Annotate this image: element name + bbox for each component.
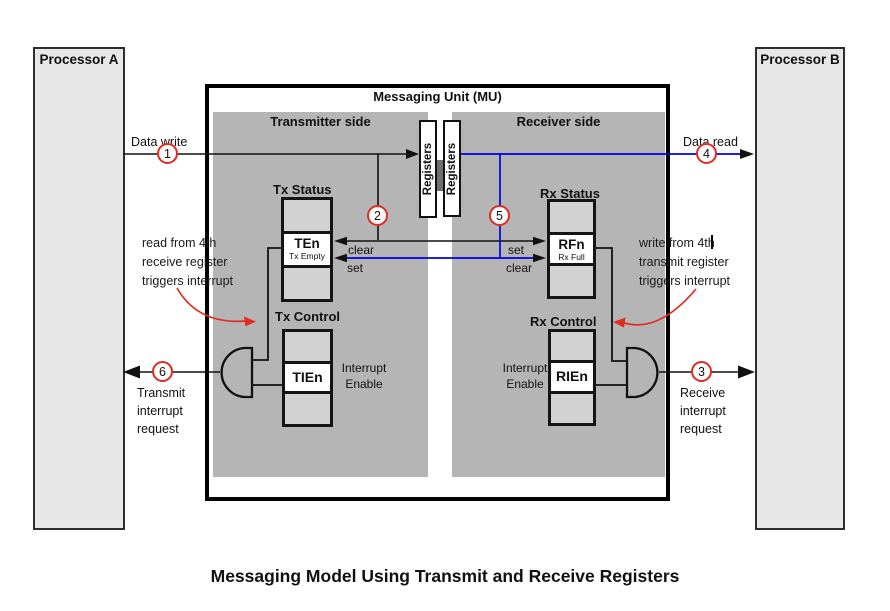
receiver-panel-title: Receiver side — [452, 114, 665, 129]
rx-interrupt-enable-label: Interrupt Enable — [500, 361, 550, 392]
step-circle-4: 4 — [696, 143, 717, 164]
diagram-canvas: Processor A Processor B Messaging Unit (… — [0, 0, 890, 611]
rfn-register-sublabel: Rx Full — [550, 252, 593, 262]
tx-control-title: Tx Control — [275, 309, 340, 324]
rx-control-cell-top — [548, 329, 596, 363]
rien-register: RIEn — [548, 360, 596, 394]
processor-a-box: Processor A — [33, 47, 125, 530]
register-file-right-label: Registers — [446, 142, 458, 194]
ten-register: TEn Tx Empty — [281, 231, 333, 268]
ten-set-label: set — [347, 261, 363, 275]
rx-control-cell-bottom — [548, 391, 596, 426]
left-annotation: read from 4th receive register triggers … — [142, 234, 233, 291]
processor-b-box: Processor B — [755, 47, 845, 530]
tx-status-title: Tx Status — [273, 182, 332, 197]
data-read-arrowhead — [740, 149, 754, 159]
tien-register-label: TIEn — [285, 364, 330, 391]
rfn-clear-label: clear — [506, 261, 532, 275]
rfn-register-label: RFn — [550, 237, 593, 252]
rfn-set-label: set — [508, 243, 524, 257]
rx-status-cell-bottom — [547, 263, 596, 299]
tx-status-cell-top — [281, 197, 333, 234]
messaging-unit-title: Messaging Unit (MU) — [205, 89, 670, 104]
ten-register-label: TEn — [284, 236, 330, 251]
tx-interrupt-enable-label: Interrupt Enable — [336, 361, 392, 392]
rfn-register: RFn Rx Full — [547, 232, 596, 266]
transmit-interrupt-request-label: Transmit interrupt request — [137, 384, 185, 438]
step-circle-6: 6 — [152, 361, 173, 382]
tx-control-cell-bottom — [282, 391, 333, 427]
step-circle-5: 5 — [489, 205, 510, 226]
step-circle-3: 3 — [691, 361, 712, 382]
processor-b-label: Processor B — [757, 49, 843, 67]
diagram-caption: Messaging Model Using Transmit and Recei… — [0, 566, 890, 587]
rx-status-cell-top — [547, 199, 596, 235]
ten-clear-label: clear — [348, 243, 374, 257]
step-circle-2: 2 — [367, 205, 388, 226]
transmit-interrupt-arrowhead — [123, 366, 140, 379]
right-annotation: write from 4th transmit register trigger… — [639, 234, 730, 291]
register-file-right: Registers — [443, 120, 461, 217]
step-circle-1: 1 — [157, 143, 178, 164]
tx-status-cell-bottom — [281, 265, 333, 302]
receive-interrupt-arrowhead — [738, 366, 755, 379]
processor-a-label: Processor A — [35, 49, 123, 67]
rx-control-title: Rx Control — [530, 314, 596, 329]
transmitter-panel-title: Transmitter side — [213, 114, 428, 129]
rien-register-label: RIEn — [551, 363, 593, 390]
receive-interrupt-request-label: Receive interrupt request — [680, 384, 726, 438]
register-file-left-label: Registers — [422, 143, 434, 195]
tien-register: TIEn — [282, 361, 333, 394]
text-cursor — [711, 235, 713, 249]
tx-control-cell-top — [282, 329, 333, 364]
register-file-left: Registers — [419, 120, 437, 218]
ten-register-sublabel: Tx Empty — [284, 251, 330, 261]
